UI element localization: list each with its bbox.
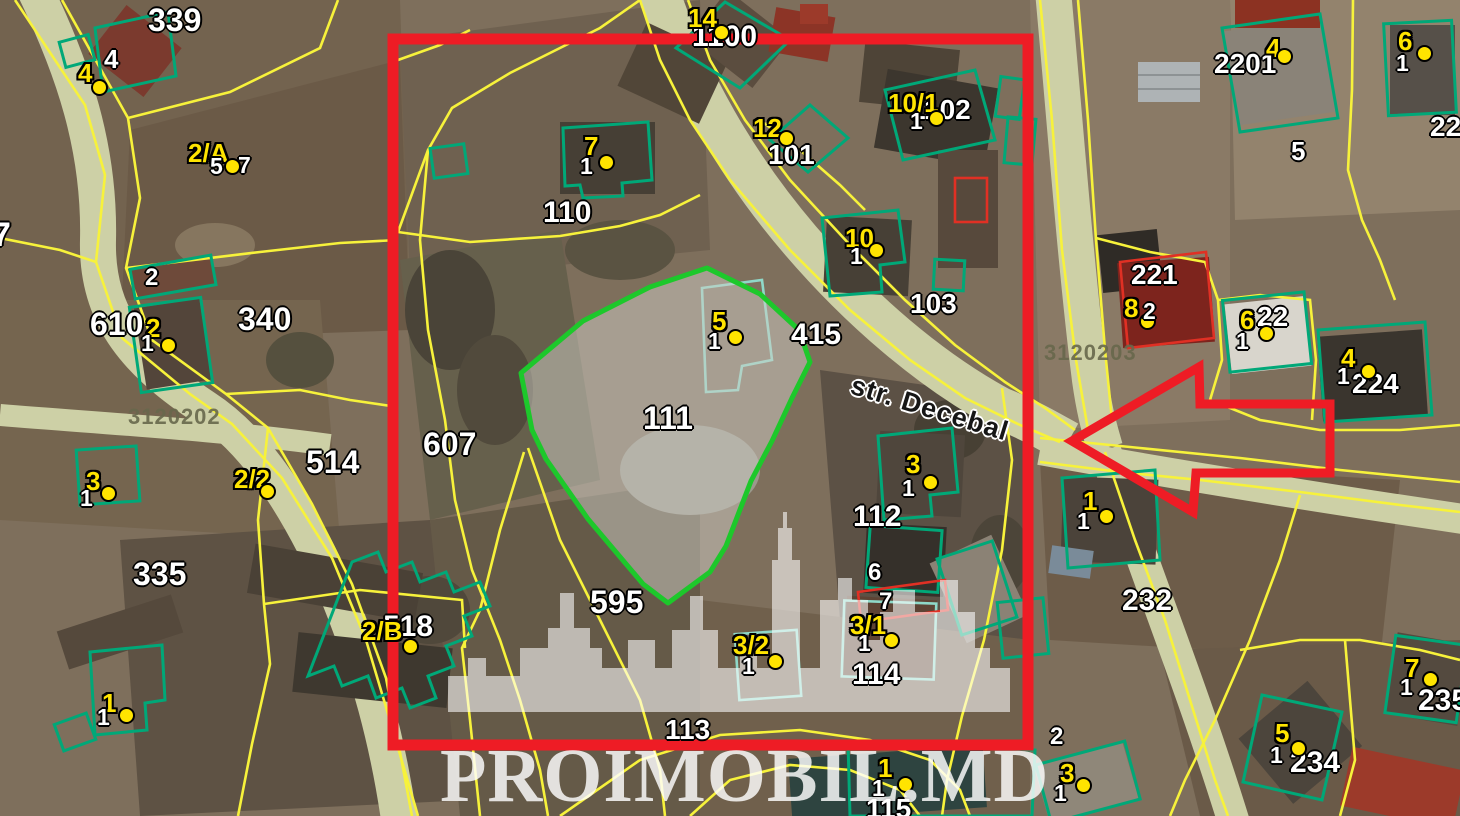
- cadastral-marker-dot: [100, 485, 117, 502]
- parcel-number-label: 222: [1430, 113, 1460, 141]
- cadastral-marker-subnumber: 1: [1054, 782, 1067, 805]
- cadastral-marker-subnumber: 1: [1400, 676, 1413, 699]
- cadastral-marker-subnumber: 1: [580, 155, 593, 178]
- cadastral-marker-subnumber: 1: [910, 110, 923, 133]
- cadastral-marker-subnumber: 1: [1337, 365, 1350, 388]
- zone-code: 3120202: [128, 406, 221, 428]
- cadastral-marker-dot: [1290, 740, 1307, 757]
- cadastral-marker-subnumber: 1: [141, 332, 154, 355]
- parcel-number-label: 114: [852, 660, 900, 690]
- parcel-number-label: 110: [543, 198, 591, 228]
- cadastral-marker-subnumber: 1: [858, 632, 871, 655]
- parcel-number-label: 339: [148, 4, 201, 36]
- parcel-number-label: 103: [910, 290, 957, 318]
- parcel-number-label: 2: [145, 266, 158, 290]
- cadastral-marker-label: 2/B: [362, 618, 402, 644]
- cadastral-marker-dot: [727, 329, 744, 346]
- cadastral-marker-dot: [868, 242, 885, 259]
- street-name-label: str. Decebal: [847, 370, 1013, 447]
- cadastral-marker-dot: [1098, 508, 1115, 525]
- cadastral-marker-subnumber: 1: [1396, 52, 1409, 75]
- parcel-number-label: 7: [0, 218, 11, 252]
- parcel-number-label: 112: [853, 502, 901, 532]
- parcel-number-label: 2: [1050, 725, 1063, 749]
- parcel-number-label: 514: [306, 446, 359, 478]
- parcel-number-label: 5: [1291, 138, 1305, 164]
- cadastral-marker-subnumber: 1: [97, 706, 110, 729]
- cadastral-marker-dot: [598, 154, 615, 171]
- cadastral-marker-dot: [767, 653, 784, 670]
- parcel-number-label: 607: [423, 428, 476, 460]
- cadastral-marker-subnumber: 1: [1236, 330, 1249, 353]
- cadastral-marker-dot: [922, 474, 939, 491]
- parcel-number-label: 595: [590, 586, 643, 618]
- cadastral-marker-label: 4: [78, 60, 92, 86]
- cadastral-marker-dot: [91, 79, 108, 96]
- cadastral-marker-subnumber: 1: [742, 655, 755, 678]
- cadastral-marker-subnumber: 1: [1077, 510, 1090, 533]
- cadastral-marker-subnumber: 1: [1270, 744, 1283, 767]
- parcel-number-label: 4: [104, 46, 118, 72]
- parcel-number-label: 221: [1131, 261, 1178, 289]
- cadastral-marker-subnumber: 5: [210, 155, 223, 178]
- cadastral-marker-subnumber: 1: [902, 477, 915, 500]
- cadastral-marker-dot: [1360, 363, 1377, 380]
- cadastral-marker-dot: [402, 638, 419, 655]
- cadastral-marker-subnumber: 1: [80, 487, 93, 510]
- cadastral-marker-label: 14: [688, 5, 717, 31]
- cadastral-marker-dot: [1422, 671, 1439, 688]
- cadastral-marker-label: 3: [906, 451, 920, 477]
- cadastral-marker-dot: [1075, 777, 1092, 794]
- cadastral-marker-subnumber: 1: [850, 245, 863, 268]
- satellite-map-view: 3120202 3120203 str. Decebal 73394261034…: [0, 0, 1460, 816]
- cadastral-marker-dot: [1258, 325, 1275, 342]
- cadastral-marker-dot: [928, 110, 945, 127]
- cadastral-marker-dot: [713, 24, 730, 41]
- parcel-number-label: 235: [1418, 686, 1460, 716]
- parcel-number-label: 6: [868, 561, 881, 585]
- cadastral-marker-dot: [118, 707, 135, 724]
- cadastral-marker-dot: [160, 337, 177, 354]
- zone-code: 3120203: [1044, 342, 1137, 364]
- parcel-number-label: 415: [791, 320, 841, 350]
- cadastral-marker-subnumber: 1: [708, 330, 721, 353]
- cadastral-marker-subnumber: 2: [1143, 300, 1156, 323]
- parcel-number-label: 232: [1122, 586, 1172, 616]
- watermark-text: PROIMOBIL.MD: [440, 738, 1040, 814]
- cadastral-marker-dot: [883, 632, 900, 649]
- cadastral-marker-dot: [778, 130, 795, 147]
- annotations-layer: 3120202 3120203 str. Decebal 73394261034…: [0, 0, 1460, 816]
- parcel-number-label: 335: [133, 558, 186, 590]
- cadastral-marker-subnumber: 7: [238, 154, 251, 177]
- cadastral-marker-dot: [1416, 45, 1433, 62]
- cadastral-marker-label: 8: [1124, 295, 1138, 321]
- cadastral-marker-dot: [1276, 48, 1293, 65]
- parcel-number-label: 340: [238, 303, 291, 335]
- parcel-number-label: 610: [90, 308, 143, 340]
- cadastral-marker-dot: [259, 483, 276, 500]
- parcel-number-label: 111: [643, 402, 693, 434]
